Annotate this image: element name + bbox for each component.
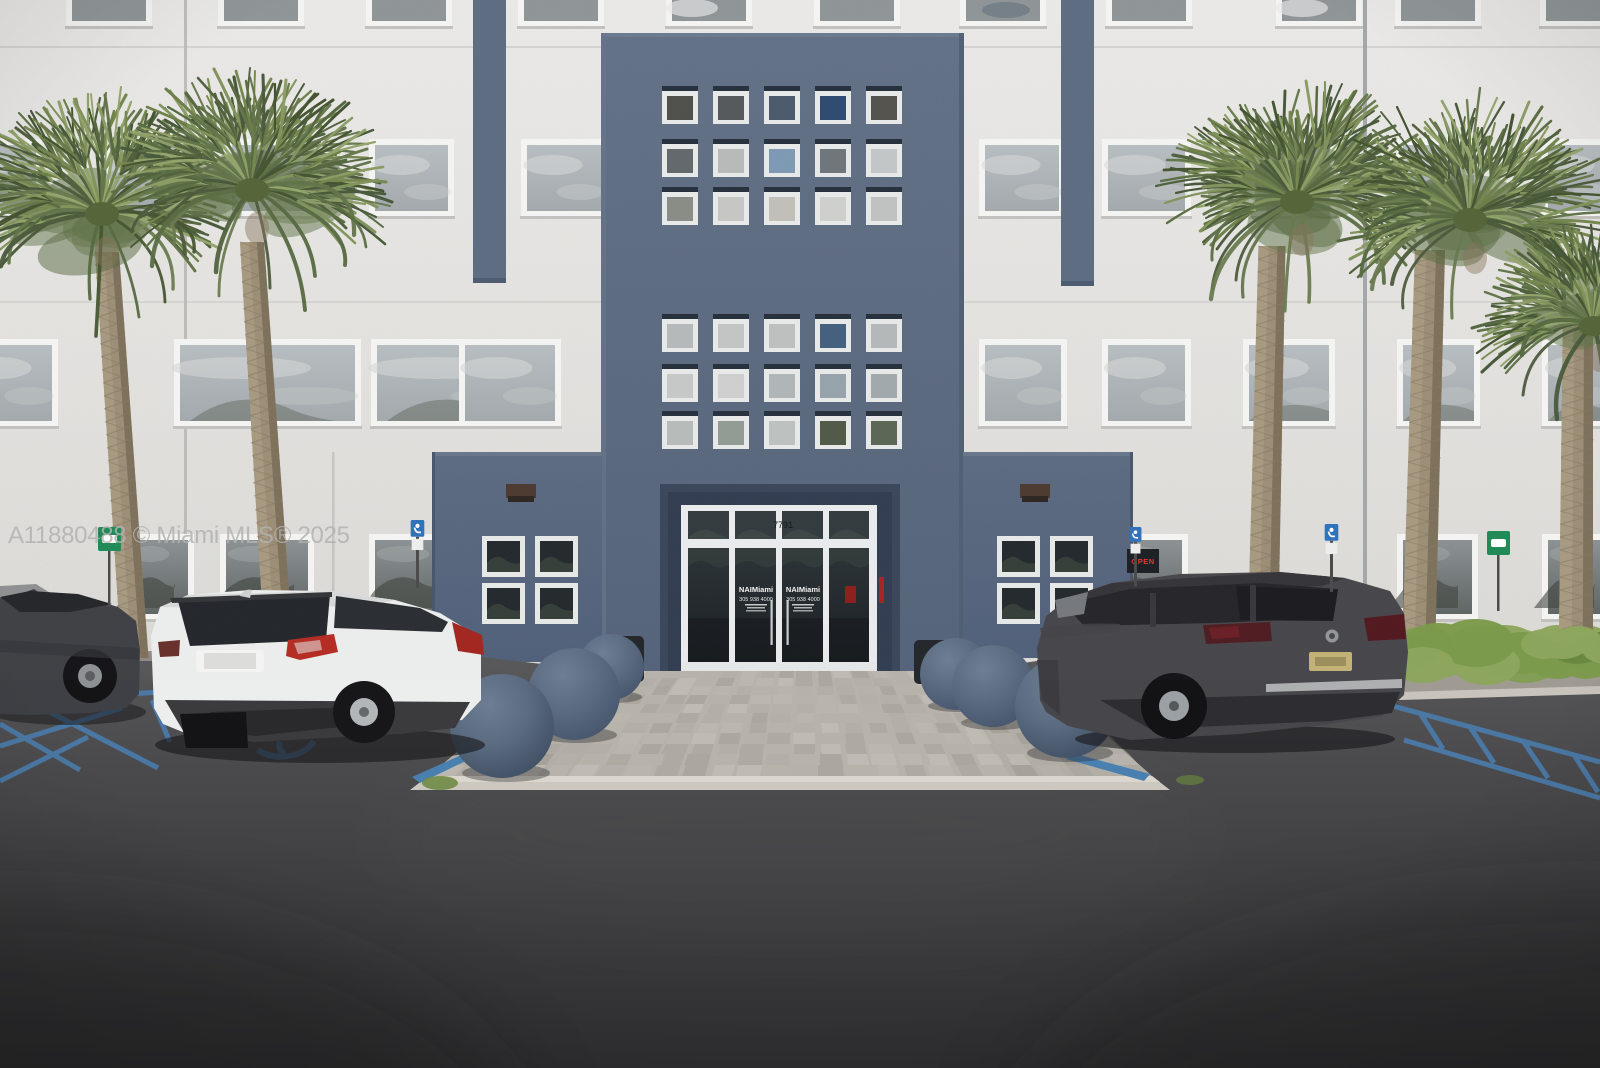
svg-text:A11880488 © Miami MLS® 2025: A11880488 © Miami MLS® 2025	[8, 522, 350, 549]
